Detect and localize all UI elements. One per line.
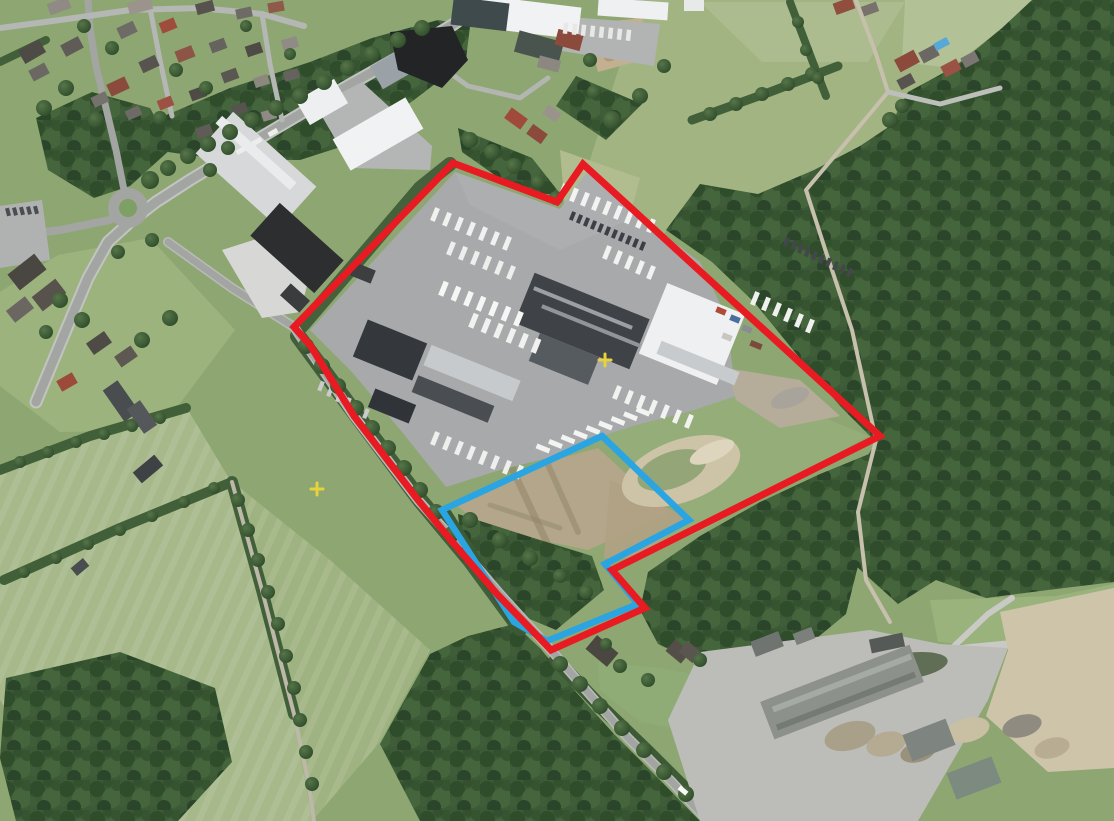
tree: [50, 552, 62, 564]
tree: [284, 48, 296, 60]
tree: [52, 292, 68, 308]
tree: [221, 141, 235, 155]
tree: [553, 569, 567, 583]
tree: [316, 74, 332, 90]
tree: [632, 88, 648, 104]
tree: [414, 20, 430, 36]
tree: [812, 72, 824, 84]
tree: [579, 585, 593, 599]
tree: [600, 638, 612, 650]
tree: [657, 59, 671, 73]
tree: [462, 512, 478, 528]
tree: [153, 111, 167, 125]
tree: [587, 85, 601, 99]
tree: [145, 233, 159, 247]
tree: [36, 100, 52, 116]
tree: [693, 653, 707, 667]
tree: [98, 428, 110, 440]
tree: [160, 160, 176, 176]
tree: [169, 63, 183, 77]
tree: [154, 412, 166, 424]
tree: [74, 312, 90, 328]
tree: [492, 532, 508, 548]
tree: [18, 566, 30, 578]
tree: [271, 617, 285, 631]
tree: [506, 158, 522, 174]
tree: [208, 482, 220, 494]
tree: [240, 20, 252, 32]
tree: [583, 53, 597, 67]
tree: [39, 325, 53, 339]
tree: [781, 77, 795, 91]
tree: [141, 171, 159, 189]
tree: [162, 310, 178, 326]
tree: [613, 659, 627, 673]
tree: [364, 46, 380, 62]
tree: [42, 446, 54, 458]
tree: [14, 456, 26, 468]
tree: [703, 107, 717, 121]
tree: [244, 112, 260, 128]
tree: [614, 720, 630, 736]
tree: [340, 60, 356, 76]
tree: [268, 100, 284, 116]
tree: [82, 538, 94, 550]
tree: [126, 420, 138, 432]
tree: [241, 523, 255, 537]
tree: [522, 550, 538, 566]
tree: [729, 97, 743, 111]
tree: [222, 124, 238, 140]
tree: [105, 41, 119, 55]
tree: [882, 112, 898, 128]
tree: [261, 585, 275, 599]
tree: [251, 553, 265, 567]
tree: [203, 163, 217, 177]
tree: [792, 16, 804, 28]
tree: [755, 87, 769, 101]
tree: [287, 681, 301, 695]
tree: [484, 144, 500, 160]
tree: [552, 656, 568, 672]
tree: [134, 332, 150, 348]
tree: [146, 510, 158, 522]
tree: [572, 676, 588, 692]
tree: [641, 673, 655, 687]
tree: [199, 81, 213, 95]
tree: [200, 136, 216, 152]
aerial-photo: [0, 0, 1114, 821]
tree: [77, 19, 91, 33]
tree: [292, 88, 308, 104]
tree: [293, 713, 307, 727]
tree: [111, 245, 125, 259]
tree: [636, 742, 652, 758]
tree: [462, 132, 478, 148]
roundabout-island: [119, 199, 137, 217]
tree: [531, 175, 545, 189]
tree: [58, 80, 74, 96]
tree: [178, 496, 190, 508]
tree: [390, 32, 406, 48]
tree: [603, 111, 621, 129]
tree: [895, 99, 909, 113]
tree: [180, 148, 196, 164]
tree: [88, 112, 104, 128]
tree: [800, 44, 812, 56]
tree: [305, 777, 319, 791]
tree: [114, 524, 126, 536]
aerial-screenshot: [0, 0, 1114, 821]
tree: [70, 436, 82, 448]
tree: [656, 764, 672, 780]
tree: [299, 745, 313, 759]
tree: [592, 698, 608, 714]
tree: [231, 493, 245, 507]
shed: [684, 0, 704, 11]
tree: [279, 649, 293, 663]
